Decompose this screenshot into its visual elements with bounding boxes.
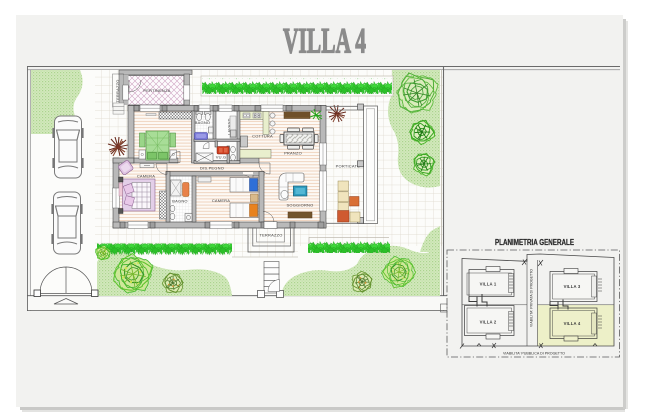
svg-text:CAMERA: CAMERA xyxy=(212,198,230,203)
svg-text:VILLA 2: VILLA 2 xyxy=(480,320,497,325)
svg-text:VU.G: VU.G xyxy=(216,155,227,160)
svg-text:BAGNO: BAGNO xyxy=(195,120,210,125)
svg-text:SOGGIORNO: SOGGIORNO xyxy=(287,203,314,208)
svg-text:COTTURA: COTTURA xyxy=(252,134,273,139)
svg-text:VILLA 4: VILLA 4 xyxy=(283,21,366,61)
svg-text:PLANIMETRIA GENERALE: PLANIMETRIA GENERALE xyxy=(495,238,575,247)
svg-text:BAGNO: BAGNO xyxy=(172,199,187,204)
svg-text:VILLA 1: VILLA 1 xyxy=(480,282,497,287)
svg-text:VILLA 4: VILLA 4 xyxy=(564,321,581,326)
svg-text:PRANZO: PRANZO xyxy=(284,151,302,156)
svg-text:VIABILITA' PUBBLICA DI PROGETT: VIABILITA' PUBBLICA DI PROGETTO xyxy=(503,351,565,356)
svg-text:VILLA 3: VILLA 3 xyxy=(564,284,581,289)
svg-text:PERTINENZA: PERTINENZA xyxy=(143,88,170,93)
svg-text:CAMERA: CAMERA xyxy=(137,174,155,179)
svg-text:TERRAZZO: TERRAZZO xyxy=(259,233,282,238)
svg-text:DIS.PEGNO: DIS.PEGNO xyxy=(200,166,224,171)
svg-text:VIABILITA' PRIVATA DI PROGETTO: VIABILITA' PRIVATA DI PROGETTO xyxy=(530,269,534,327)
svg-text:PORTICATO: PORTICATO xyxy=(336,164,361,169)
